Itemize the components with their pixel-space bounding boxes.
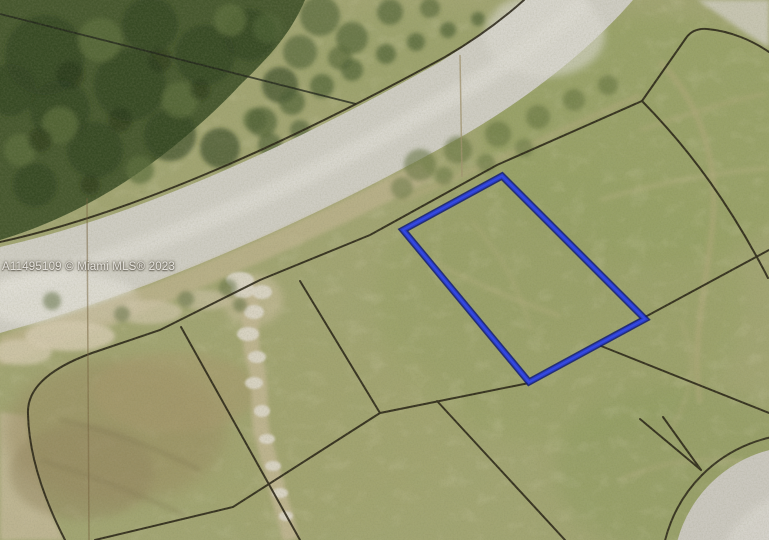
aerial-parcel-map: A11495109 © Miami MLS® 2023: [0, 0, 769, 540]
grain-overlay-dark: [0, 0, 769, 540]
aerial-photo-canvas: [0, 0, 769, 540]
